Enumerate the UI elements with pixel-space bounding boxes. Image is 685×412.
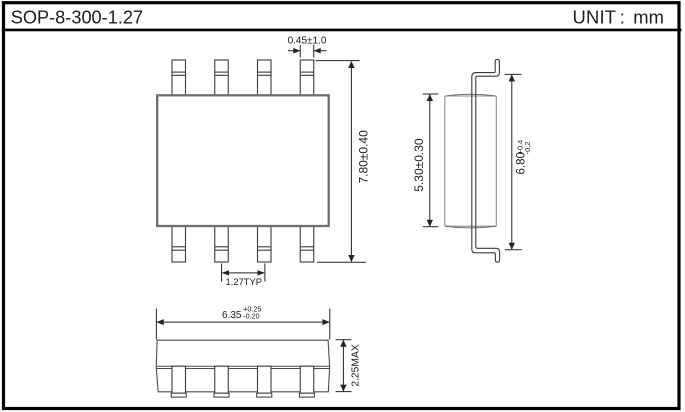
- svg-text:6.80: 6.80: [515, 152, 527, 174]
- svg-text::: :: [620, 6, 625, 27]
- svg-text:7.80±0.40: 7.80±0.40: [357, 130, 371, 184]
- svg-text:2.25MAX: 2.25MAX: [351, 344, 362, 386]
- svg-text:SOP-8-300-1.27: SOP-8-300-1.27: [11, 8, 143, 28]
- svg-text:UNIT: UNIT: [573, 6, 617, 27]
- svg-text:5.30±0.30: 5.30±0.30: [412, 138, 426, 192]
- svg-text:-0.2: -0.2: [523, 142, 532, 155]
- svg-text:6.35: 6.35: [222, 310, 242, 321]
- svg-text:-0.20: -0.20: [243, 312, 259, 321]
- svg-text:1.27TYP: 1.27TYP: [226, 276, 262, 287]
- svg-text:mm: mm: [633, 6, 664, 27]
- svg-text:0.45±1.0: 0.45±1.0: [288, 36, 327, 47]
